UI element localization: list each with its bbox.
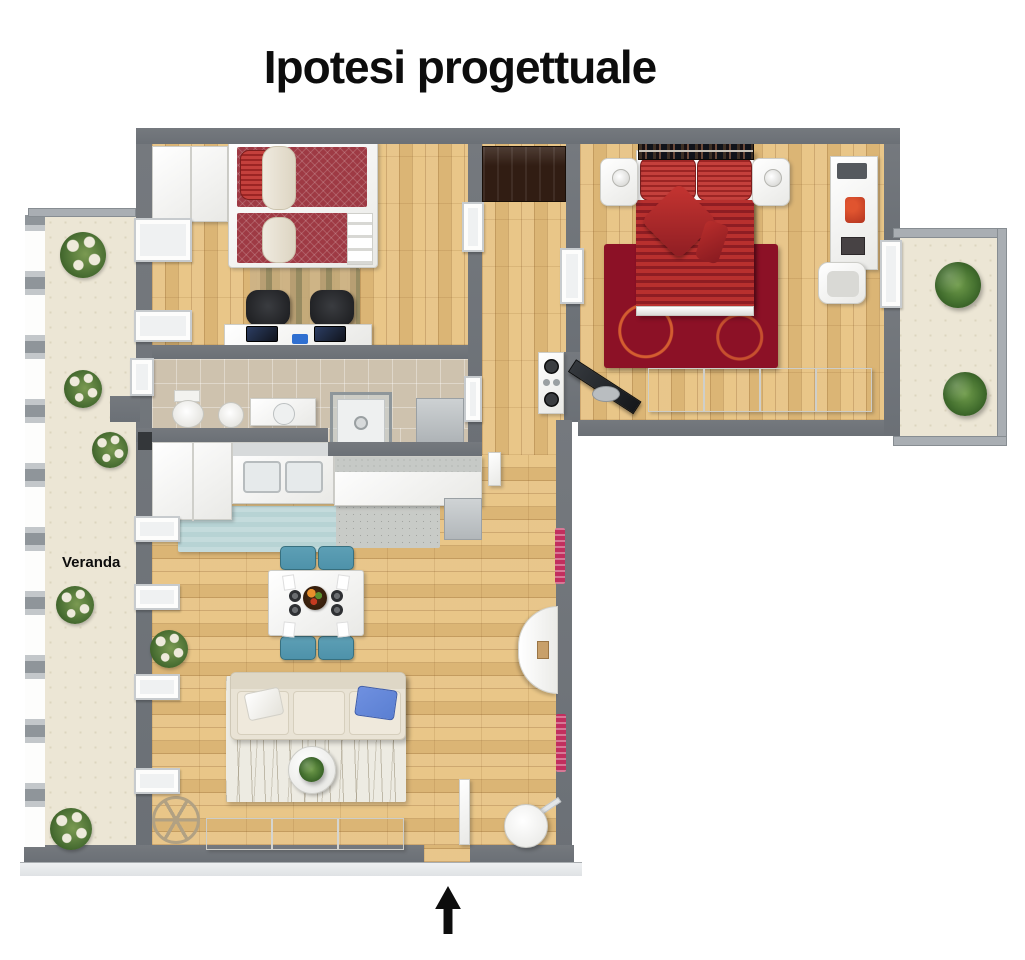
- lamp-left: [612, 169, 630, 187]
- wall-bath-bottom-right: [328, 442, 482, 456]
- master-pillow-right: [697, 157, 752, 201]
- veranda-window-strip: [22, 215, 45, 847]
- bathroom-door: [464, 376, 482, 422]
- balcony-plant-2: [943, 372, 987, 416]
- kitchen-counter-sink: [232, 442, 334, 504]
- wheel-decor: [152, 796, 200, 844]
- desk-accessory: [292, 334, 308, 344]
- fruit-bowl: [303, 586, 327, 610]
- bedroom1-window-1: [134, 218, 192, 262]
- hall-door-leaf: [488, 452, 501, 486]
- desk-item-box: [841, 237, 865, 255]
- master-chair: [818, 262, 866, 304]
- balcony-plant-1: [935, 262, 981, 308]
- stove-counter: [538, 352, 564, 414]
- master-wardrobe: [648, 368, 872, 412]
- wall-living-right: [556, 420, 572, 862]
- shelf-divider: [639, 150, 753, 152]
- veranda-plant-1: [60, 232, 106, 278]
- wall-bath-bottom-left: [136, 428, 328, 442]
- page-title: Ipotesi progettuale: [0, 40, 920, 94]
- stove-knob-2: [553, 379, 560, 386]
- kitchen-end-unit: [444, 498, 482, 540]
- napkin-3: [282, 621, 296, 637]
- balcony-rail-top: [893, 228, 1007, 238]
- veranda-rail-top: [28, 208, 136, 217]
- master-door: [560, 248, 584, 304]
- wall-master-right-b: [884, 306, 900, 436]
- entrance-door-leaf: [459, 779, 470, 845]
- north-arrow-icon: [434, 886, 462, 934]
- wardrobe-door-line: [190, 147, 192, 223]
- plate-1: [289, 590, 301, 602]
- master-desk: [830, 156, 878, 270]
- living-window-2: [134, 584, 180, 610]
- veranda-plant-4: [56, 586, 94, 624]
- desk-item-red: [845, 197, 865, 223]
- sofa-back: [231, 673, 405, 689]
- living-window-3: [134, 674, 180, 700]
- plate-2: [289, 604, 301, 616]
- wall-top: [136, 128, 900, 144]
- burner-1: [544, 359, 559, 374]
- lamp-right: [764, 169, 782, 187]
- dining-chair-4: [318, 636, 354, 660]
- veranda-plant-2: [64, 370, 102, 408]
- napkin-2: [336, 574, 350, 591]
- plate-4: [331, 604, 343, 616]
- dining-chair-1: [280, 546, 316, 570]
- countertop-speckle: [335, 457, 481, 472]
- bunk-blanket-upper: [262, 146, 296, 210]
- sink-bowl-1: [243, 461, 281, 493]
- living-window-4: [134, 768, 180, 794]
- living-plant: [150, 630, 188, 668]
- sink-bowl-2: [285, 461, 323, 493]
- fridge-door-line: [192, 443, 194, 521]
- veranda-plant-5: [50, 808, 92, 850]
- computer-monitor-2: [314, 326, 346, 342]
- toilet: [172, 400, 204, 428]
- computer-monitor-1: [246, 326, 278, 342]
- countertop: [233, 443, 333, 456]
- bunk-bed: [228, 140, 378, 268]
- floor-lamp-shade: [504, 804, 548, 848]
- bunk-blanket-lower: [262, 217, 296, 263]
- bedroom1-wardrobe: [152, 146, 228, 222]
- napkin-4: [336, 621, 350, 637]
- sofa-cushion-2: [293, 691, 345, 735]
- wall-bedroom1-bath: [152, 345, 468, 359]
- washbasin: [273, 403, 295, 425]
- shower-drain: [354, 416, 368, 430]
- radiator-1: [555, 528, 565, 584]
- floor-plan: Ipotesi progettuale: [0, 0, 1025, 960]
- burner-2: [544, 392, 559, 407]
- bed-foot-rail: [636, 306, 754, 316]
- bathroom-window: [130, 358, 154, 396]
- master-chair-seat: [827, 271, 859, 297]
- plate-3: [331, 590, 343, 602]
- bunk-ladder: [347, 213, 373, 265]
- desk-chair-2: [310, 290, 354, 326]
- sofa-pillow-blue: [354, 685, 398, 720]
- console-item: [537, 641, 549, 659]
- kitchen-mat: [336, 504, 440, 548]
- fridge: [152, 442, 232, 520]
- nightstand-left: [600, 158, 638, 206]
- bedroom1-window-2: [134, 310, 192, 342]
- stove-knob-1: [543, 379, 550, 386]
- living-window-1: [134, 516, 180, 542]
- balcony-rail-right: [997, 228, 1007, 446]
- veranda-wall-stub-a: [110, 396, 140, 422]
- radiator-2: [556, 714, 566, 772]
- veranda-label: Veranda: [62, 554, 172, 571]
- nightstand-right: [752, 158, 790, 206]
- bathroom-vanity: [250, 398, 316, 426]
- balcony-rail-bottom: [893, 436, 1007, 446]
- napkin-1: [282, 574, 296, 591]
- entrance-door-gap: [424, 845, 470, 862]
- wall-master-bottom: [578, 420, 900, 436]
- veranda-plant-3: [92, 432, 128, 468]
- outer-ledge: [20, 862, 582, 876]
- coffee-table-plant: [299, 757, 324, 782]
- desk-item-dark: [837, 163, 867, 179]
- utility-box: [138, 432, 152, 450]
- desk-chair-1: [246, 290, 290, 326]
- dining-chair-2: [318, 546, 354, 570]
- bedroom1-door: [462, 202, 484, 252]
- bidet: [218, 402, 244, 428]
- dining-chair-3: [280, 636, 316, 660]
- sideboard: [206, 818, 404, 850]
- washing-machine: [416, 398, 464, 444]
- master-balcony-window: [880, 240, 902, 308]
- entry-closet: [482, 146, 566, 202]
- tv-stand: [592, 386, 620, 402]
